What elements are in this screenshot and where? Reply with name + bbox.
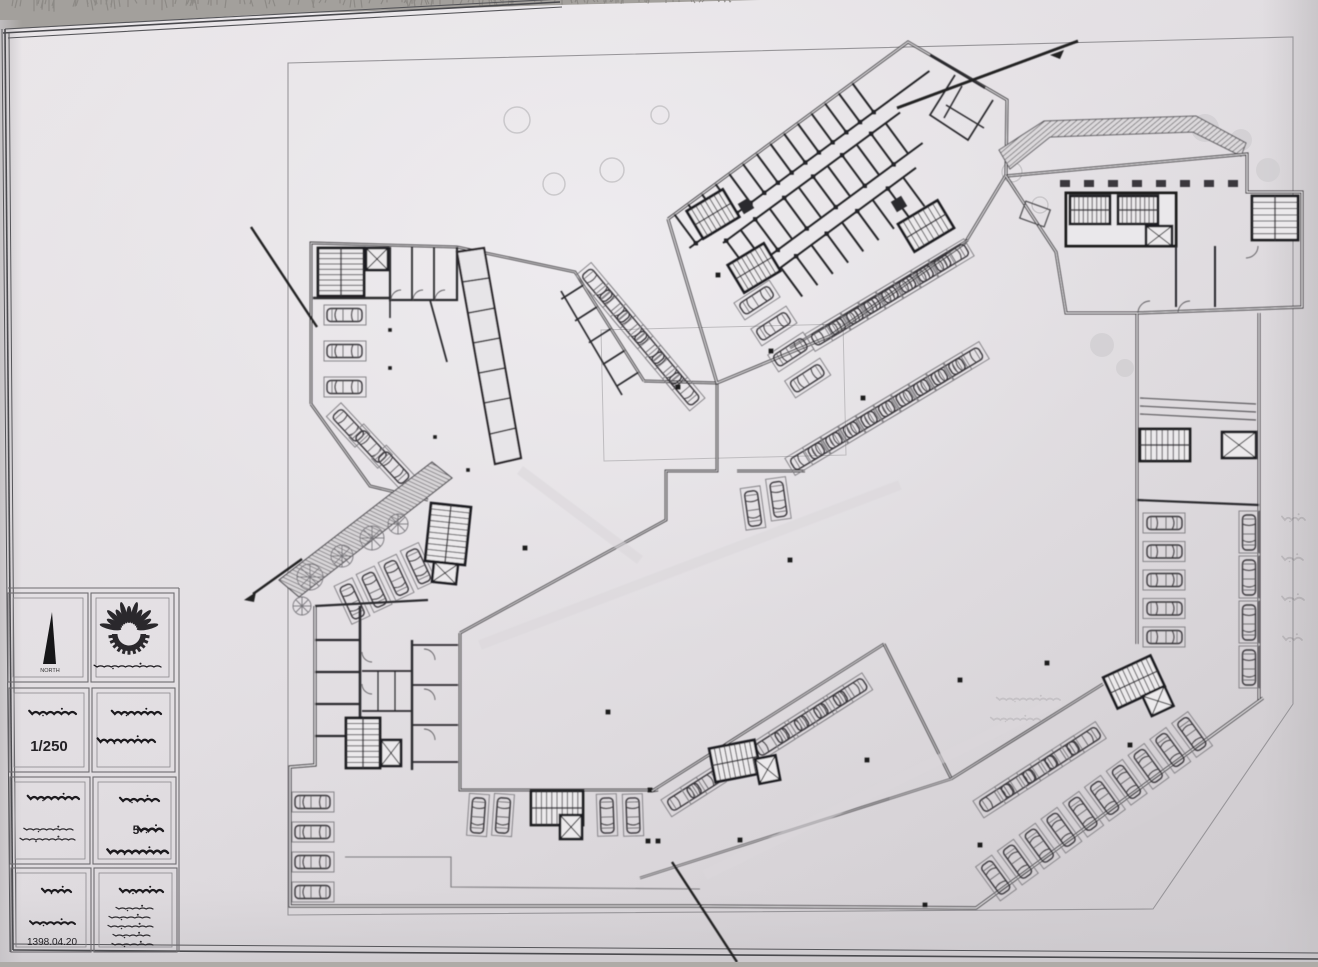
svg-text:1398.04.20: 1398.04.20 — [27, 937, 77, 948]
svg-text:NORTH: NORTH — [40, 668, 59, 674]
svg-text:1/250: 1/250 — [30, 738, 68, 755]
svg-text:5: 5 — [133, 823, 140, 837]
